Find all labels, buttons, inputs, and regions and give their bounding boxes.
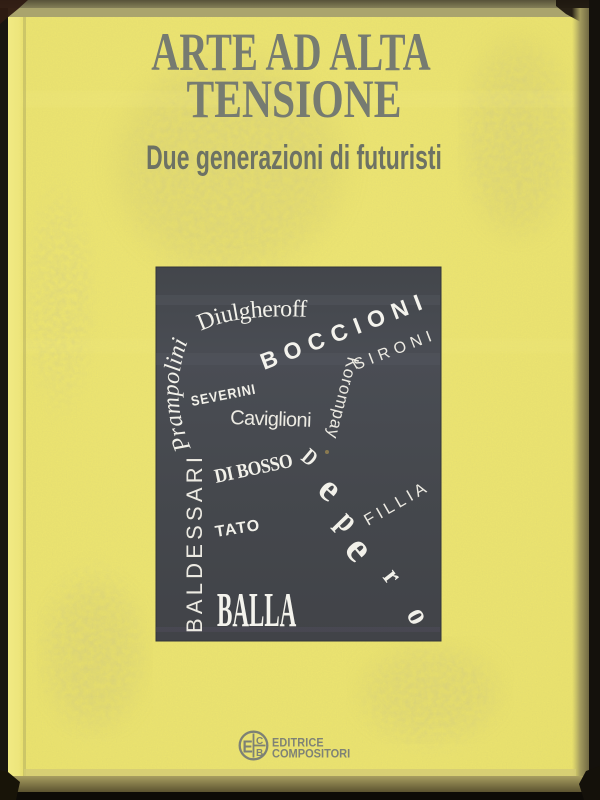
svg-text:BALDESSARI: BALDESSARI <box>182 453 207 633</box>
svg-text:Caviglioni: Caviglioni <box>230 407 312 432</box>
svg-text:TENSIONE: TENSIONE <box>187 70 402 129</box>
svg-text:E: E <box>243 736 253 756</box>
svg-text:COMPOSITORI: COMPOSITORI <box>272 748 350 760</box>
svg-text:Due generazioni di futuristi: Due generazioni di futuristi <box>146 140 442 178</box>
svg-text:B: B <box>256 748 263 759</box>
svg-text:C: C <box>256 736 263 747</box>
svg-text:BALLA: BALLA <box>217 584 297 638</box>
